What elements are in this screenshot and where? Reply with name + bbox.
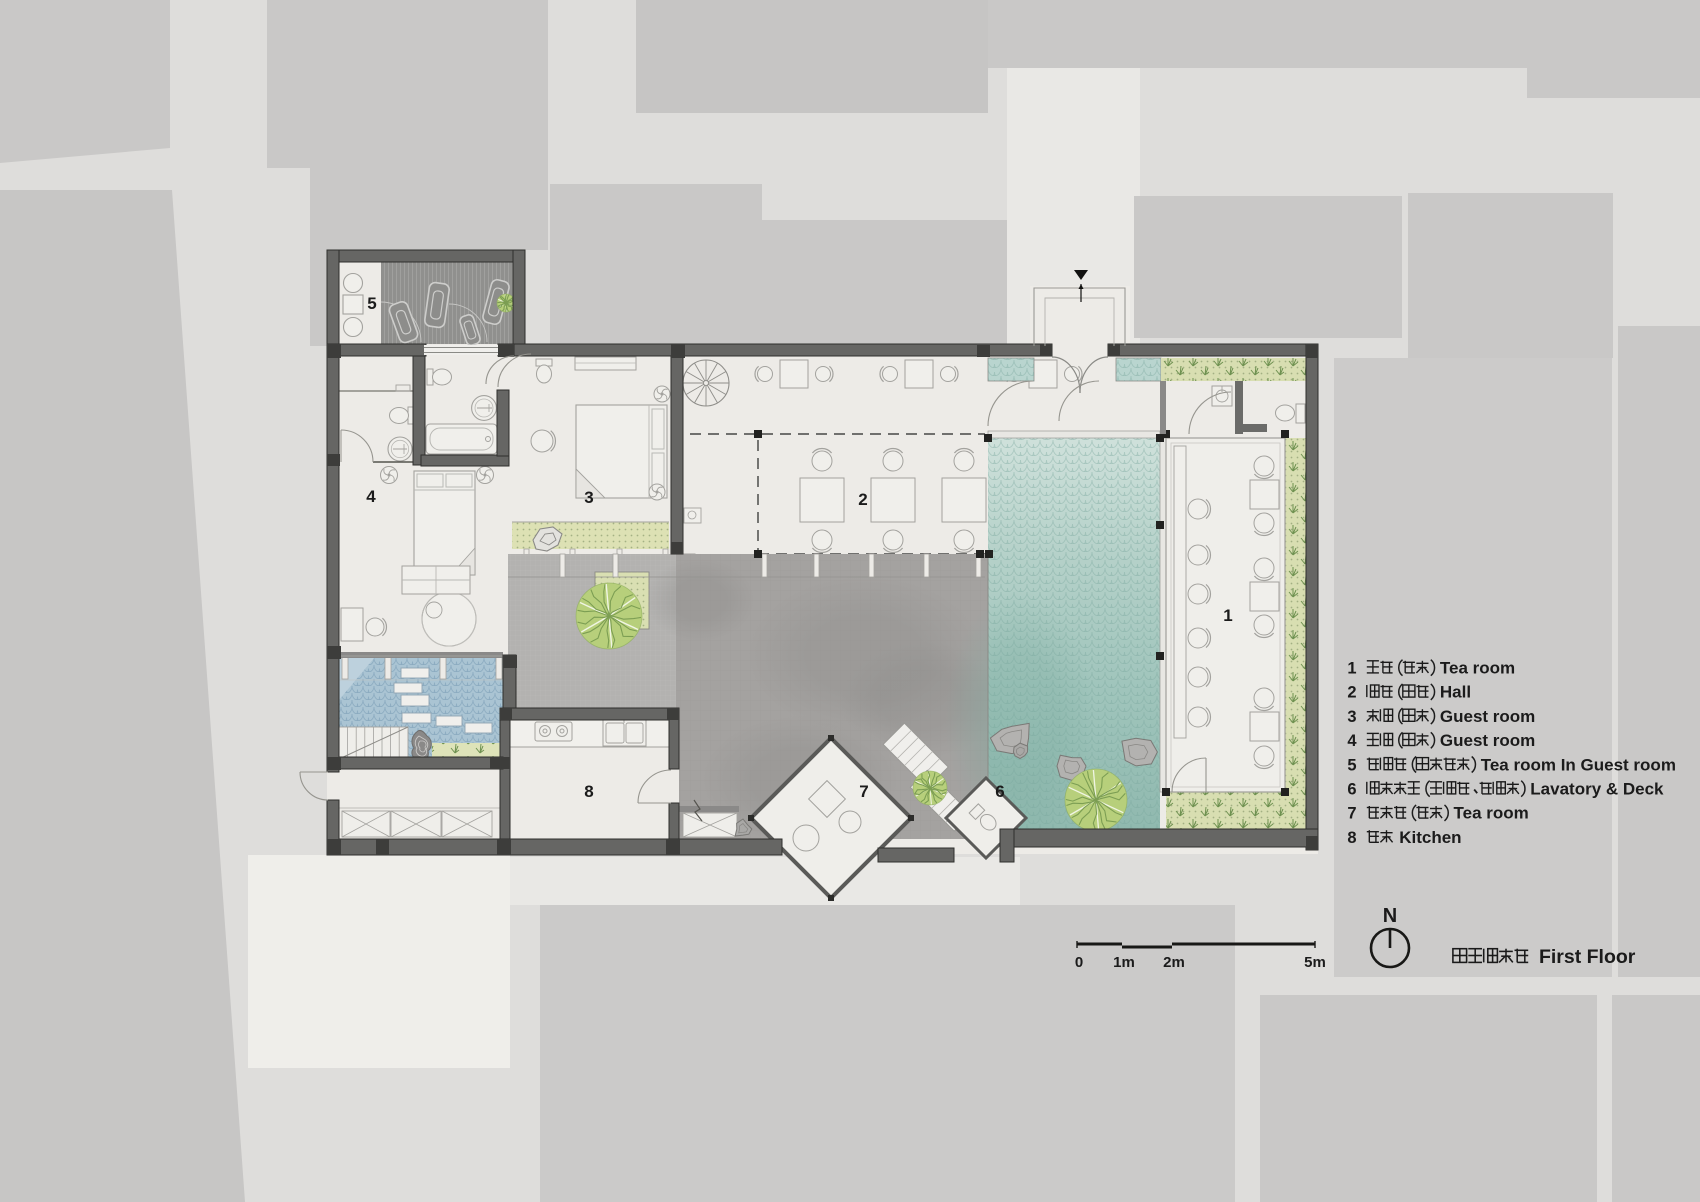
svg-text:7: 7 bbox=[859, 782, 868, 801]
svg-text:1: 1 bbox=[1223, 606, 1232, 625]
svg-text:First Floor: First Floor bbox=[1539, 946, 1636, 968]
svg-text:Lavatory & Deck: Lavatory & Deck bbox=[1530, 780, 1664, 799]
svg-text:N: N bbox=[1383, 905, 1397, 927]
svg-text:3: 3 bbox=[584, 488, 593, 507]
svg-text:8: 8 bbox=[1347, 829, 1356, 847]
svg-text:6: 6 bbox=[995, 782, 1004, 801]
svg-text:2: 2 bbox=[858, 490, 867, 509]
svg-text:Kitchen: Kitchen bbox=[1399, 828, 1461, 847]
svg-text:4: 4 bbox=[366, 487, 376, 506]
svg-text:0: 0 bbox=[1075, 954, 1083, 971]
svg-text:3: 3 bbox=[1347, 708, 1356, 726]
svg-text:4: 4 bbox=[1347, 732, 1357, 750]
svg-text:Guest room: Guest room bbox=[1440, 707, 1535, 726]
svg-text:Guest room: Guest room bbox=[1440, 731, 1535, 750]
svg-text:Tea room In Guest room: Tea room In Guest room bbox=[1481, 755, 1676, 774]
svg-text:5m: 5m bbox=[1304, 954, 1326, 971]
svg-text:2m: 2m bbox=[1163, 954, 1185, 971]
svg-text:8: 8 bbox=[584, 782, 593, 801]
svg-text:Tea room: Tea room bbox=[1440, 659, 1515, 678]
svg-text:Tea room: Tea room bbox=[1454, 804, 1529, 823]
svg-text:Hall: Hall bbox=[1440, 683, 1471, 702]
svg-text:2: 2 bbox=[1347, 684, 1356, 702]
svg-text:1: 1 bbox=[1347, 660, 1356, 678]
svg-text:7: 7 bbox=[1347, 805, 1356, 823]
svg-text:5: 5 bbox=[367, 294, 376, 313]
svg-text:5: 5 bbox=[1347, 756, 1356, 774]
svg-text:1m: 1m bbox=[1113, 954, 1135, 971]
svg-text:6: 6 bbox=[1347, 781, 1356, 799]
